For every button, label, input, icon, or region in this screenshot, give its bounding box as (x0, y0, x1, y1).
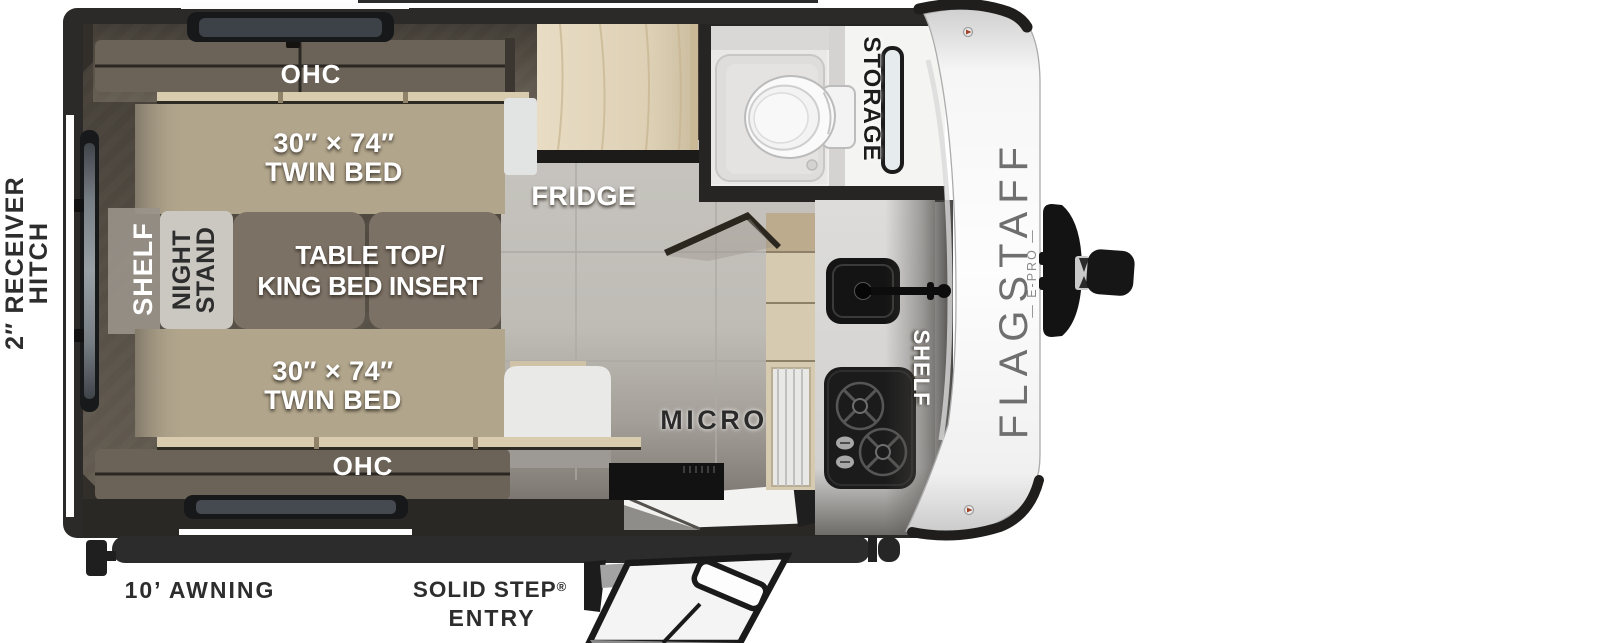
svg-text:SHELF: SHELF (128, 222, 158, 316)
svg-text:TWIN BED: TWIN BED (265, 157, 402, 187)
svg-text:TWIN BED: TWIN BED (264, 385, 401, 415)
svg-text:30″ × 74″: 30″ × 74″ (273, 128, 394, 158)
svg-text:OHC: OHC (333, 451, 394, 481)
svg-text:HITCH: HITCH (25, 222, 53, 304)
svg-text:KING BED INSERT: KING BED INSERT (257, 271, 483, 301)
svg-text:TABLE TOP/: TABLE TOP/ (295, 240, 444, 270)
svg-text:— E-PRO —: — E-PRO — (1025, 228, 1039, 318)
svg-text:FRIDGE: FRIDGE (531, 181, 636, 211)
svg-text:10’ AWNING: 10’ AWNING (125, 577, 276, 603)
svg-text:STORAGE: STORAGE (858, 36, 885, 161)
svg-text:OHC: OHC (281, 59, 342, 89)
svg-text:SOLID STEP®: SOLID STEP® (413, 577, 567, 602)
svg-text:STAND: STAND (192, 227, 220, 314)
svg-text:30″ × 74″: 30″ × 74″ (272, 356, 393, 386)
svg-text:SHELF: SHELF (909, 329, 934, 406)
svg-text:ENTRY: ENTRY (448, 605, 535, 631)
svg-text:MICRO: MICRO (660, 405, 768, 435)
